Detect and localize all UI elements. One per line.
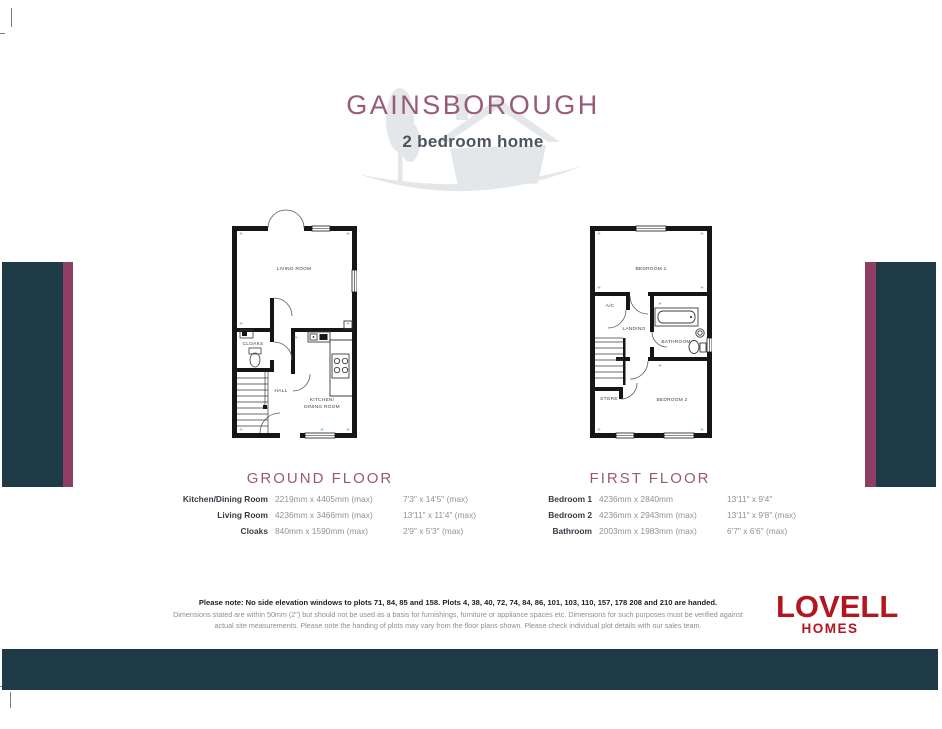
right-band-teal — [876, 262, 936, 487]
first-floor-plan: BEDROOM 1 A/C LANDING BATHROOM STORE BED… — [590, 200, 712, 445]
dimension-row: Bedroom 2 4236mm x 2943mm (max) 13'11" x… — [480, 507, 820, 523]
left-band-purple-stripe — [63, 262, 73, 487]
bottom-teal-bar — [2, 649, 938, 690]
dimension-row: Bedroom 1 4236mm x 2840mm 13'11" x 9'4" — [480, 491, 820, 507]
dimension-row: Living Room 4236mm x 3466mm (max) 13'11"… — [140, 507, 500, 523]
plot-subtitle: 2 bedroom home — [300, 132, 646, 152]
label-cloaks: CLOAKS — [243, 341, 264, 347]
first-floor-heading: FIRST FLOOR — [480, 470, 820, 487]
ground-floor-dimensions: Kitchen/Dining Room 2219mm x 4405mm (max… — [140, 491, 500, 539]
label-kitchen-1: KITCHEN/ — [310, 397, 335, 403]
crop-mark-bottom-vertical — [10, 692, 11, 708]
label-living-room: LIVING ROOM — [277, 266, 312, 272]
brochure-page: GAINSBOROUGH 2 bedroom home — [0, 0, 942, 729]
disclaimer-bold-line: Please note: No side elevation windows t… — [168, 597, 748, 608]
crop-mark-top-horizontal — [0, 33, 5, 34]
dimension-row: Cloaks 840mm x 1590mm (max) 2'9" x 5'3" … — [140, 523, 500, 539]
crop-mark-top-vertical — [11, 8, 12, 27]
dimension-row: Kitchen/Dining Room 2219mm x 4405mm (max… — [140, 491, 500, 507]
first-floor-dimensions: Bedroom 1 4236mm x 2840mm 13'11" x 9'4" … — [480, 491, 820, 539]
label-landing: LANDING — [622, 326, 645, 332]
label-hall: HALL — [275, 388, 288, 394]
dimension-row: Bathroom 2003mm x 1983mm (max) 6'7" x 6'… — [480, 523, 820, 539]
ground-floor-heading: GROUND FLOOR — [140, 470, 500, 487]
left-band-teal — [2, 262, 63, 487]
ground-floor-plan: LIVING ROOM CLOAKS HALL KITCHEN/ DINING … — [232, 200, 357, 445]
logo-wordmark: LOVELL — [776, 592, 884, 622]
right-band-purple-stripe — [865, 262, 876, 487]
disclaimer-small-print: Dimensions stated are within 50mm (2") b… — [168, 610, 748, 631]
label-ac: A/C — [606, 303, 615, 309]
disclaimer-note: Please note: No side elevation windows t… — [168, 597, 748, 631]
label-bathroom: BATHROOM — [661, 339, 690, 345]
label-bedroom-1: BEDROOM 1 — [635, 266, 666, 272]
lovell-homes-logo: LOVELL HOMES — [776, 592, 884, 635]
label-store: STORE — [600, 396, 618, 402]
label-kitchen-2: DINING ROOM — [304, 404, 340, 410]
plot-title: GAINSBOROUGH — [300, 90, 646, 121]
label-bedroom-2: BEDROOM 2 — [656, 397, 687, 403]
